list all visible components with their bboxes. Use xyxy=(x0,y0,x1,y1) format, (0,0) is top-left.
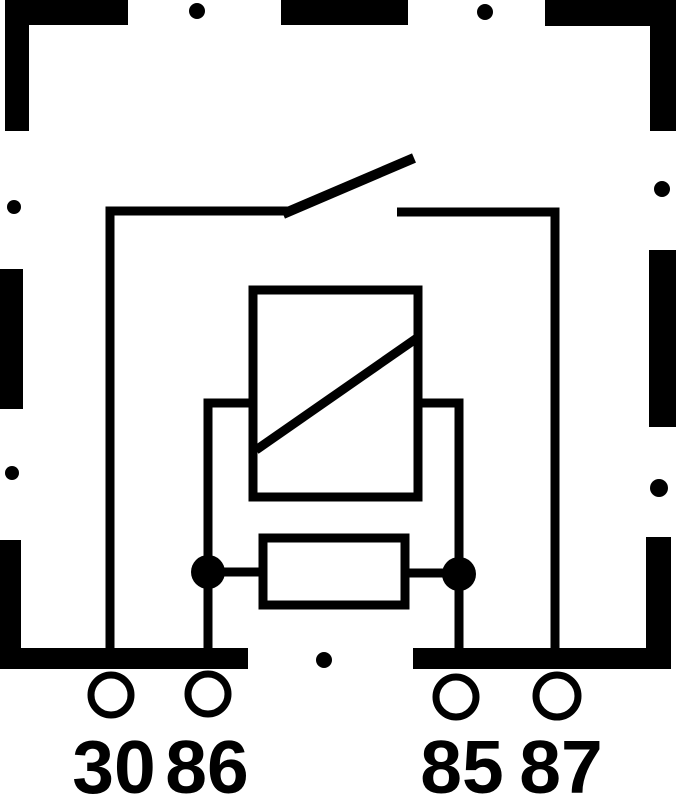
terminal-label-87: 87 xyxy=(519,725,602,800)
border-dash-left-middle xyxy=(0,269,23,409)
switch-contact xyxy=(110,158,555,655)
border-dot-top-1 xyxy=(189,3,205,19)
border-dot-bottom xyxy=(316,652,332,668)
relay-coil xyxy=(253,290,418,497)
border-dot-left-1 xyxy=(7,200,21,214)
terminal-label-86: 86 xyxy=(165,725,248,800)
bottom-bus-bar-right xyxy=(413,648,671,669)
bottom-bus-bar-left xyxy=(0,648,248,669)
junction-dot-86 xyxy=(191,555,225,589)
relay-schematic-canvas: 30 86 85 87 xyxy=(0,0,686,800)
border-dot-top-2 xyxy=(477,4,493,20)
border-dot-right-1 xyxy=(654,181,670,197)
yoke-right-leg xyxy=(418,403,459,650)
switch-blade xyxy=(283,158,414,214)
border-dash-top-left-vertical xyxy=(5,0,29,131)
terminal-label-30: 30 xyxy=(72,725,155,800)
border-dash-top-middle xyxy=(281,0,408,25)
border-dot-left-2 xyxy=(5,466,19,480)
housing-dashed-border xyxy=(0,0,676,669)
terminal-pin-85 xyxy=(436,677,476,717)
border-dash-top-right-vertical xyxy=(650,0,676,131)
yoke-left-leg xyxy=(208,403,253,650)
junction-dot-85 xyxy=(442,557,476,591)
relay-schematic-diagram: 30 86 85 87 xyxy=(0,0,686,800)
resistor xyxy=(208,538,459,605)
terminal-pin-30 xyxy=(91,675,131,715)
terminal-pins xyxy=(91,674,578,717)
coil-diagonal xyxy=(256,338,417,450)
resistor-body xyxy=(263,538,405,605)
terminal-label-85: 85 xyxy=(420,725,503,800)
border-dash-right-middle xyxy=(649,250,676,427)
terminal-pin-87 xyxy=(536,675,578,717)
terminal-pin-86 xyxy=(188,674,228,714)
border-dot-right-2 xyxy=(650,479,668,497)
terminal-labels: 30 86 85 87 xyxy=(72,725,602,800)
